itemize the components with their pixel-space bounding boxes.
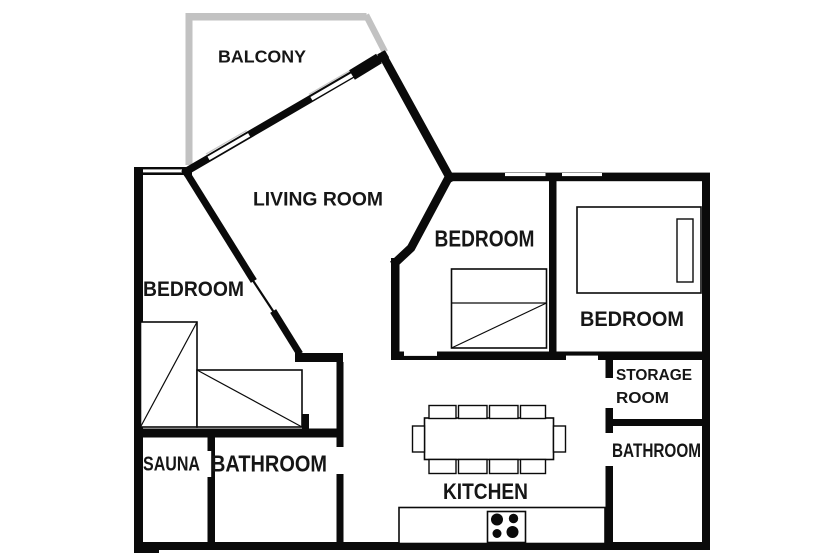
svg-text:BEDROOM: BEDROOM (143, 277, 244, 301)
svg-text:BATHROOM: BATHROOM (211, 451, 327, 477)
svg-text:STORAGE: STORAGE (616, 367, 692, 384)
svg-text:LIVING ROOM: LIVING ROOM (253, 189, 383, 211)
svg-text:BALCONY: BALCONY (218, 47, 306, 67)
svg-text:ROOM: ROOM (616, 390, 669, 407)
svg-text:BEDROOM: BEDROOM (580, 307, 684, 331)
svg-text:BATHROOM: BATHROOM (612, 440, 701, 462)
svg-text:SAUNA: SAUNA (143, 454, 200, 476)
svg-text:KITCHEN: KITCHEN (443, 479, 528, 504)
svg-text:BEDROOM: BEDROOM (435, 226, 535, 252)
